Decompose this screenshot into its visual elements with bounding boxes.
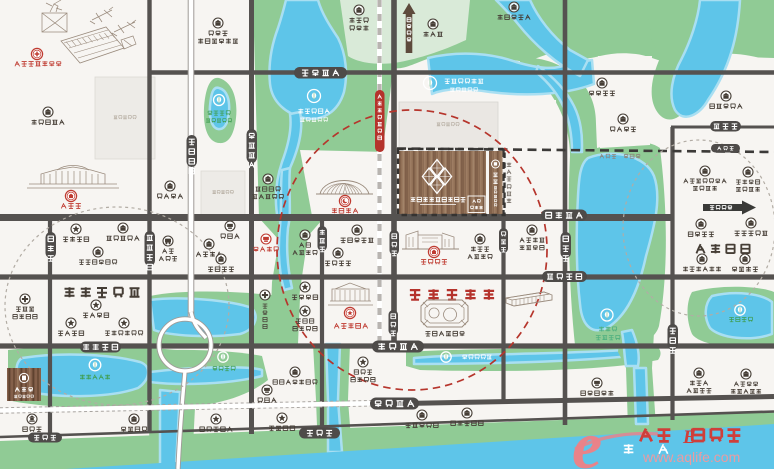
svg-text:www.aqlife.com: www.aqlife.com: [642, 449, 740, 465]
svg-text:e: e: [572, 407, 602, 469]
